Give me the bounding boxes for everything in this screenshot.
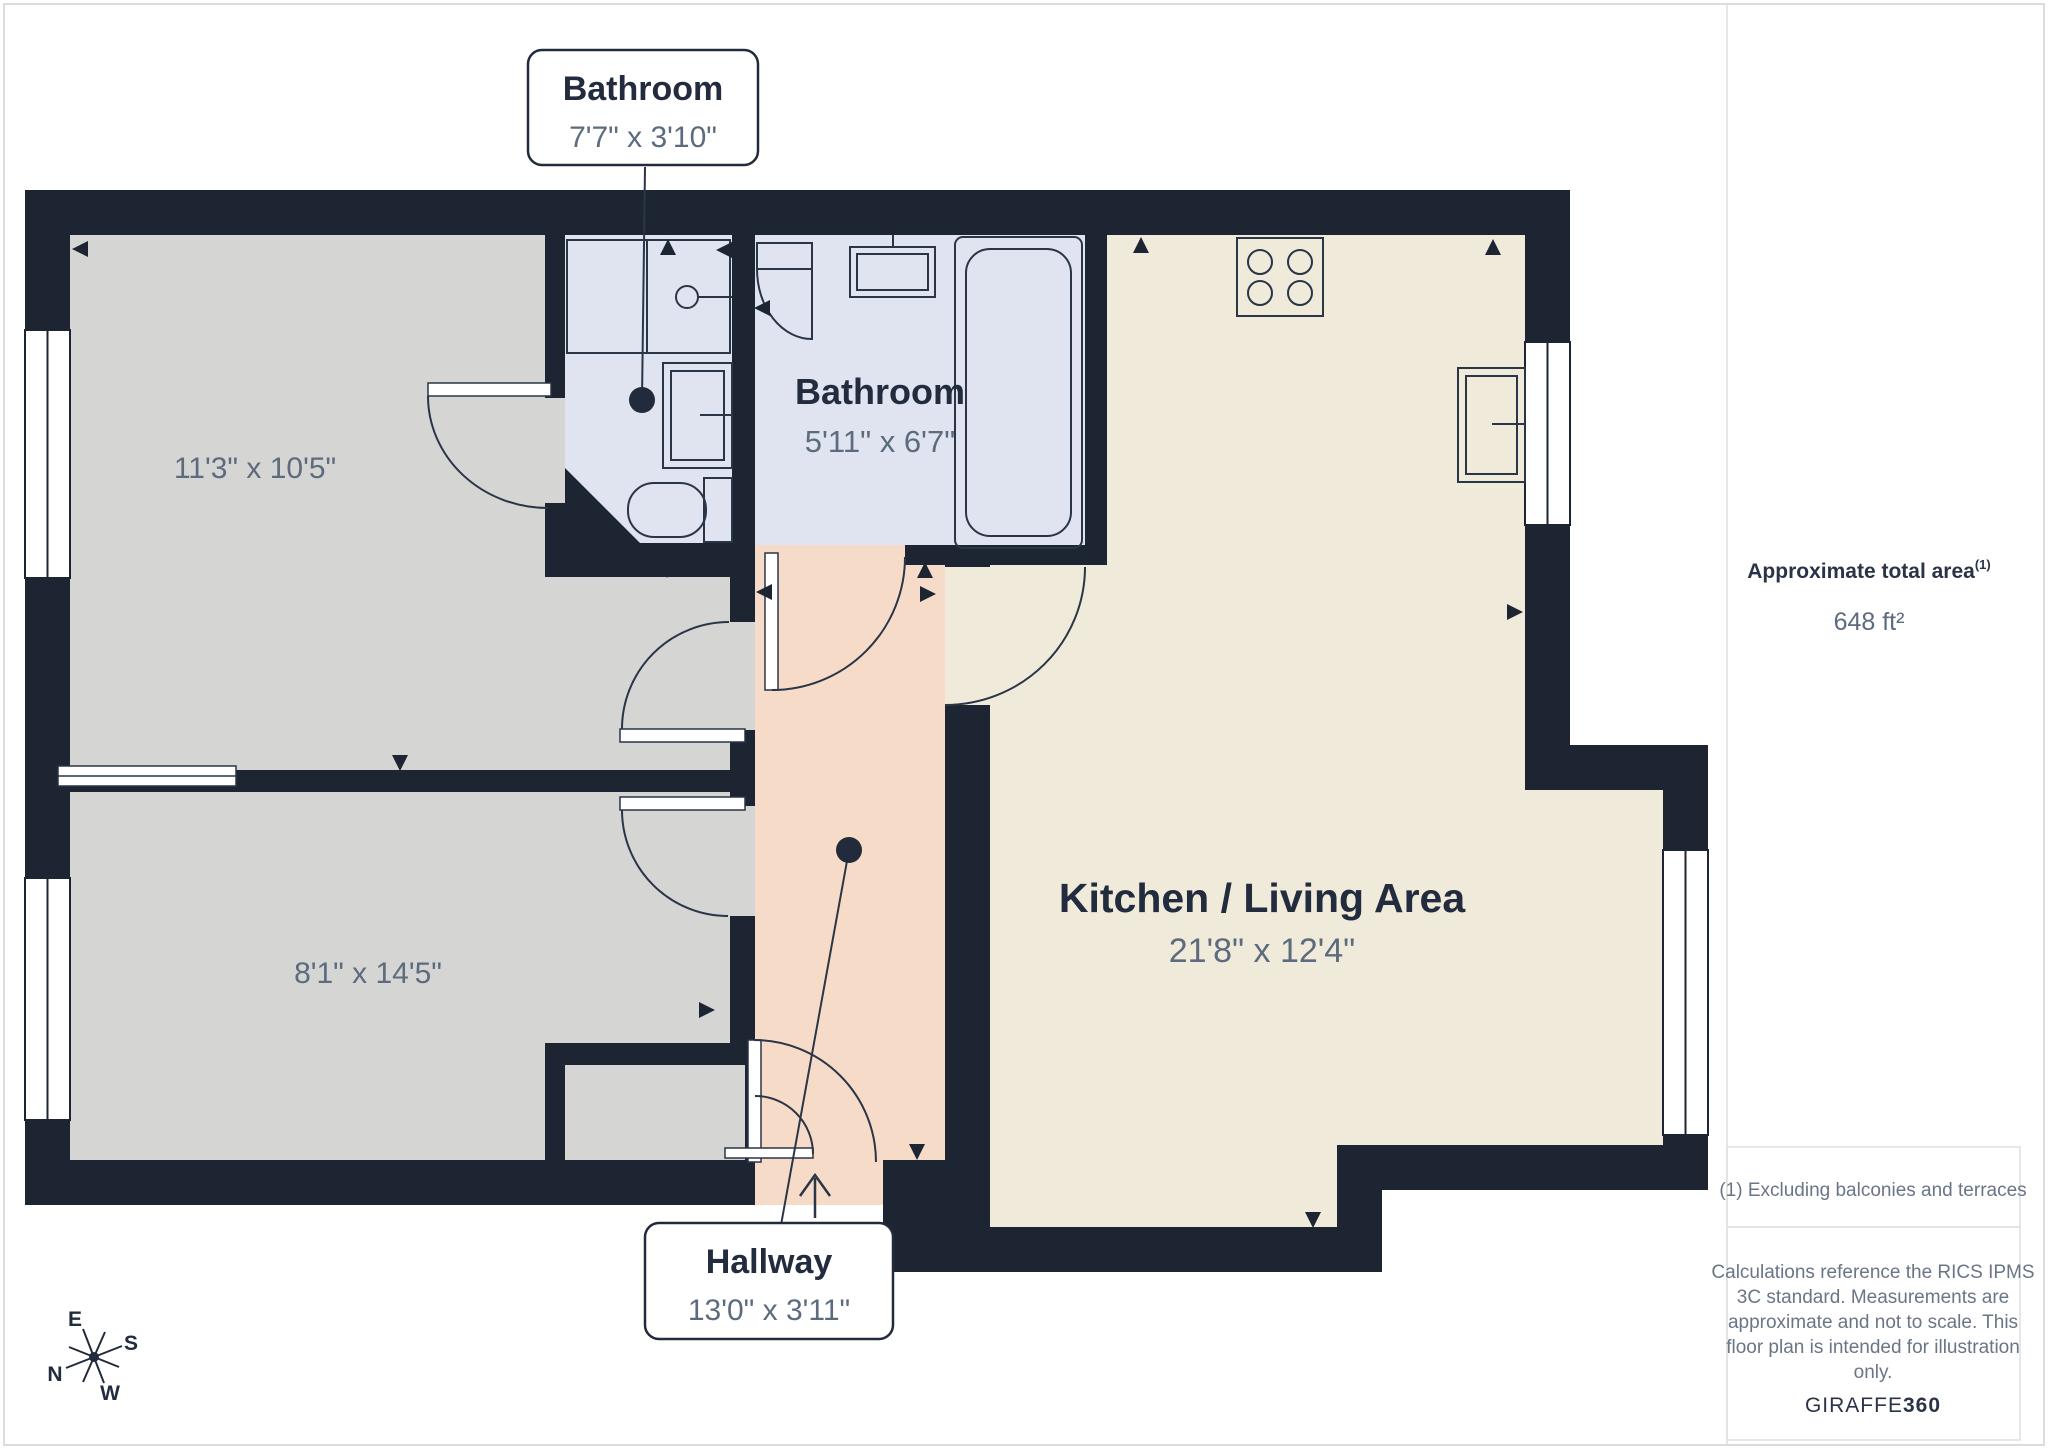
- room-bedroom-2-nook: [565, 1065, 745, 1160]
- disclaimer-line: floor plan is intended for illustration: [1726, 1337, 2020, 1358]
- total-area-label: Approximate total area(1): [1747, 557, 1990, 583]
- camera-point: [629, 387, 655, 413]
- disclaimer-line: Calculations reference the RICS IPMS: [1711, 1262, 2034, 1283]
- hallway-callout-name: Hallway: [706, 1243, 833, 1281]
- compass-e: E: [68, 1308, 82, 1331]
- bathroom-callout: Bathroom 7'7" x 3'10": [528, 50, 758, 165]
- window: [25, 878, 70, 1120]
- floorplan-canvas: 11'3" x 10'5" 8'1" x 14'5" Bathroom 5'11…: [0, 0, 2048, 1449]
- window: [25, 330, 70, 578]
- hallway-callout: Hallway 13'0" x 3'11": [645, 1223, 893, 1339]
- bathroom-callout-name: Bathroom: [563, 70, 724, 108]
- brand-logo: GIRAFFE360: [1805, 1394, 1941, 1417]
- disclaimer-line: 3C standard. Measurements are: [1737, 1287, 2009, 1308]
- sidebar: Approximate total area(1) 648 ft² (1) Ex…: [1711, 5, 2034, 1444]
- door-opening: [730, 622, 755, 730]
- compass-w: W: [100, 1382, 120, 1405]
- bathroom-callout-dims: 7'7" x 3'10": [569, 121, 717, 154]
- footnote: (1) Excluding balconies and terraces: [1719, 1180, 2026, 1201]
- camera-point: [836, 837, 862, 863]
- disclaimer-line: only.: [1854, 1362, 1893, 1383]
- kitchen-dims: 21'8" x 12'4": [1169, 932, 1355, 970]
- kitchen-name: Kitchen / Living Area: [1059, 875, 1466, 921]
- window: [1525, 342, 1570, 525]
- bathroom-main-dims: 5'11" x 6'7": [805, 424, 955, 459]
- compass-n: N: [47, 1363, 62, 1386]
- bedroom2-dims: 8'1" x 14'5": [294, 957, 442, 990]
- door-opening: [730, 806, 755, 916]
- wardrobe-doors: [58, 766, 236, 786]
- floorplan-drawing: [25, 167, 1708, 1272]
- compass-rose: E S N W: [47, 1308, 138, 1405]
- total-area-value: 648 ft²: [1834, 608, 1905, 636]
- window: [1663, 850, 1708, 1135]
- door-opening: [545, 398, 565, 503]
- hallway-callout-dims: 13'0" x 3'11": [688, 1294, 850, 1327]
- compass-s: S: [124, 1332, 138, 1355]
- door-opening: [945, 567, 990, 705]
- disclaimer-line: approximate and not to scale. This: [1728, 1312, 2018, 1333]
- bedroom1-dims: 11'3" x 10'5": [174, 452, 336, 485]
- floorplan-page: 11'3" x 10'5" 8'1" x 14'5" Bathroom 5'11…: [0, 0, 2048, 1449]
- bathroom-main-name: Bathroom: [795, 371, 965, 412]
- room-bedroom-1-floor: [70, 235, 545, 770]
